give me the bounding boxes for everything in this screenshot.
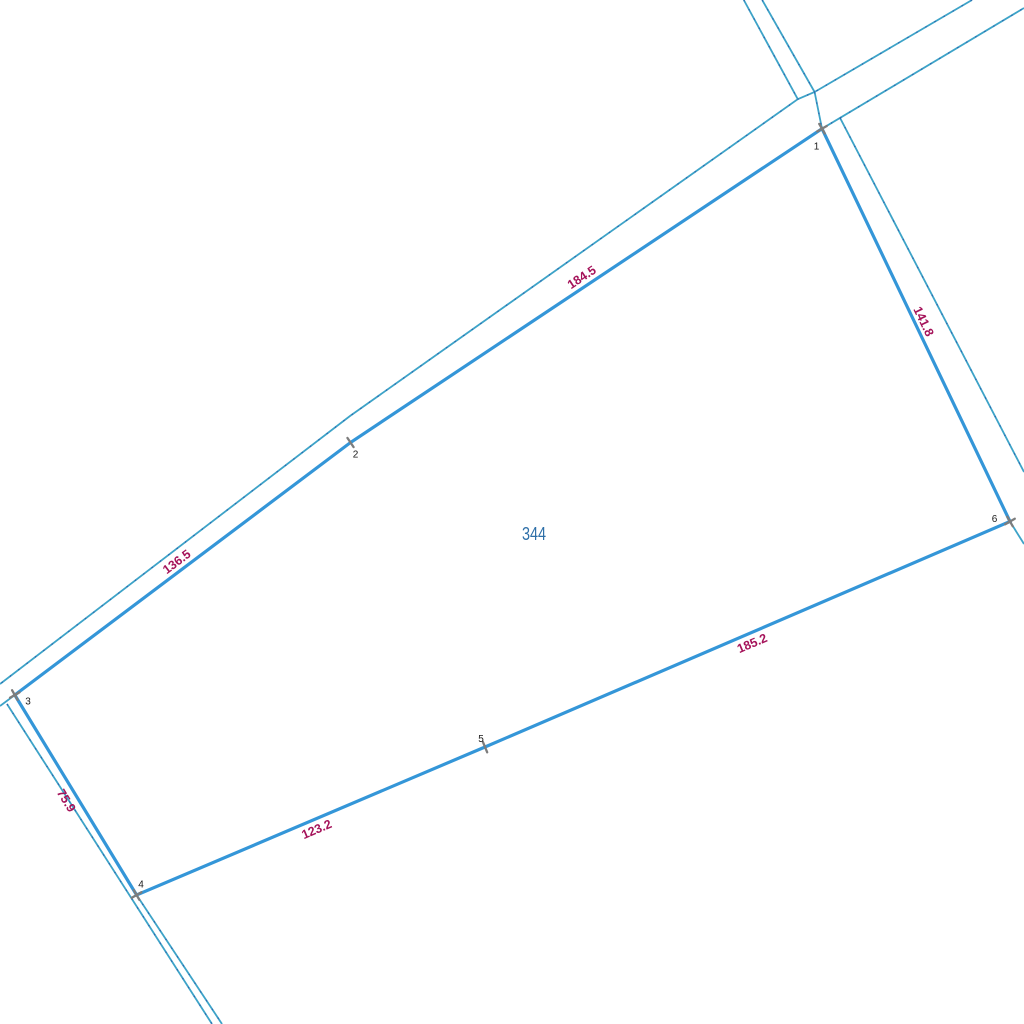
svg-text:6: 6 <box>992 514 998 525</box>
svg-text:1: 1 <box>814 142 820 153</box>
svg-text:5: 5 <box>478 734 484 745</box>
svg-text:3: 3 <box>25 697 31 708</box>
svg-text:4: 4 <box>138 880 144 891</box>
svg-text:185.2: 185.2 <box>735 631 769 656</box>
svg-text:123.2: 123.2 <box>300 817 334 842</box>
svg-text:344: 344 <box>522 523 546 544</box>
svg-text:2: 2 <box>353 450 359 461</box>
